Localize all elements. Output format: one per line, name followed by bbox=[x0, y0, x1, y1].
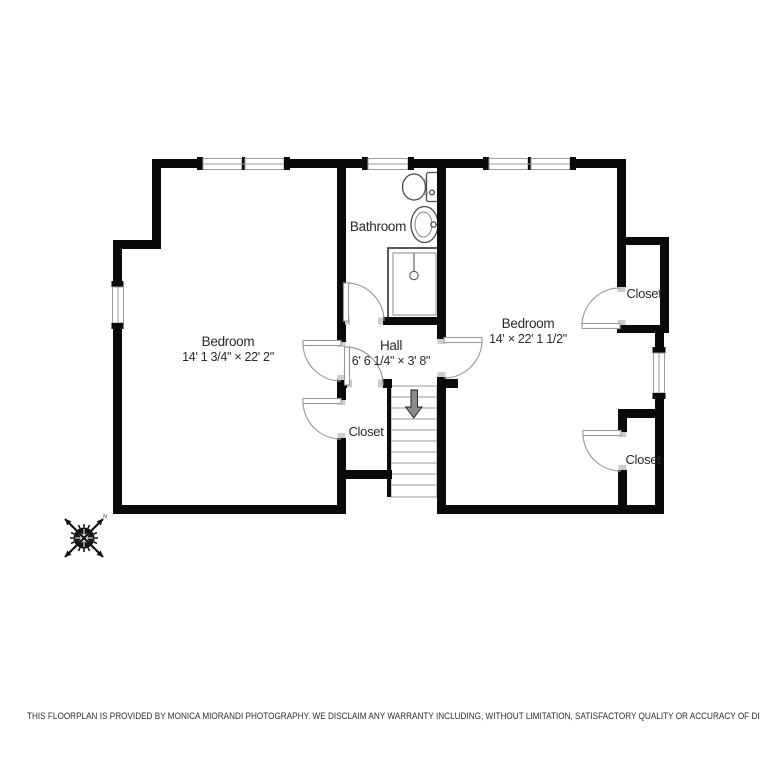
wall-ne-closet-right bbox=[660, 237, 669, 333]
disclaimer-text: THIS FLOORPLAN IS PROVIDED BY MONICA MIO… bbox=[27, 711, 706, 721]
floorplan-svg: Bedroom 14' 1 3/4" × 22' 2" Bathroom Hal… bbox=[0, 0, 760, 760]
doors bbox=[303, 283, 621, 471]
door-closet-mid bbox=[303, 399, 341, 440]
door-bedroom-right bbox=[444, 338, 482, 379]
bedroom-right-label: Bedroom bbox=[502, 316, 555, 331]
compass-north-letter: N bbox=[103, 514, 107, 520]
staircase bbox=[387, 385, 437, 497]
bedroom-right-dimensions: 14' × 22' 1 1/2" bbox=[489, 332, 567, 346]
hall-dimensions: 6' 6 1/4" × 3' 8" bbox=[352, 354, 430, 368]
wall-hall-stub bbox=[446, 379, 458, 388]
stair-side-wall bbox=[387, 385, 391, 497]
wall-bath-right-b bbox=[437, 377, 446, 514]
wall-left-lower-a bbox=[113, 240, 122, 286]
toilet-icon bbox=[403, 173, 439, 202]
shower-icon bbox=[388, 248, 441, 320]
wall-bottom-right bbox=[437, 505, 664, 514]
floorplan-page: Bedroom 14' 1 3/4" × 22' 2" Bathroom Hal… bbox=[0, 0, 760, 760]
door-bedroom-left bbox=[303, 341, 341, 382]
wall-right-upper bbox=[617, 159, 626, 287]
closet-mid-label: Closet bbox=[348, 424, 384, 439]
door-bathroom bbox=[344, 283, 385, 321]
wall-hall-bottom-b bbox=[383, 379, 392, 388]
wall-bath-right-a bbox=[437, 159, 446, 339]
wall-closet-mid-bottom bbox=[337, 470, 392, 479]
wall-left-upper bbox=[152, 159, 161, 249]
wall-left-lower-b bbox=[113, 324, 122, 514]
bathroom-label: Bathroom bbox=[350, 219, 406, 234]
wall-hall-top-b bbox=[383, 317, 446, 325]
closet-ne-label: Closet bbox=[626, 286, 662, 301]
wall-se-closet-left-a bbox=[618, 409, 627, 432]
wall-bottom-left bbox=[113, 505, 346, 514]
door-closet-se bbox=[583, 431, 621, 472]
hall-label: Hall bbox=[380, 338, 402, 353]
closet-se-label: Closet bbox=[625, 452, 661, 467]
bedroom-left-dimensions: 14' 1 3/4" × 22' 2" bbox=[182, 350, 274, 364]
bedroom-left-label: Bedroom bbox=[202, 334, 255, 349]
door-closet-ne bbox=[582, 288, 620, 329]
sink-icon bbox=[411, 207, 441, 243]
compass-rose-icon: N bbox=[65, 514, 107, 557]
